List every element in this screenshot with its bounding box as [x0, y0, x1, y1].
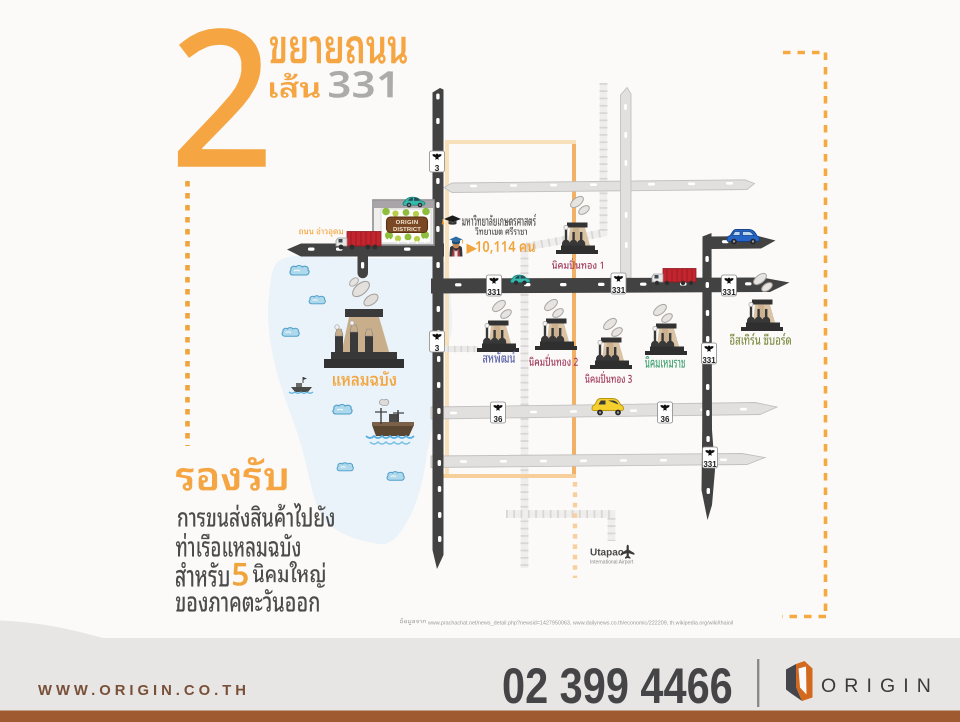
svg-text:WWW.ORIGIN.CO.TH: WWW.ORIGIN.CO.TH [38, 683, 250, 699]
svg-text:331: 331 [612, 286, 626, 295]
svg-text:International Airport: International Airport [590, 560, 634, 566]
svg-text:ORIGIN: ORIGIN [396, 220, 419, 226]
svg-text:ORIGIN: ORIGIN [821, 675, 939, 697]
svg-text:331: 331 [722, 288, 736, 297]
svg-text:36: 36 [494, 415, 503, 424]
svg-text:02 399 4466: 02 399 4466 [502, 657, 733, 714]
svg-text:www.prachachat.net/news_detail: www.prachachat.net/news_detail.php?newsi… [427, 621, 733, 627]
svg-text:331: 331 [702, 356, 716, 365]
svg-text:Utapao: Utapao [590, 548, 624, 559]
svg-text:3: 3 [435, 163, 440, 173]
svg-text:DISTRICT: DISTRICT [393, 227, 421, 233]
svg-text:3: 3 [435, 343, 440, 353]
svg-text:36: 36 [661, 415, 670, 424]
svg-text:331: 331 [487, 288, 501, 297]
svg-text:331: 331 [703, 460, 717, 469]
